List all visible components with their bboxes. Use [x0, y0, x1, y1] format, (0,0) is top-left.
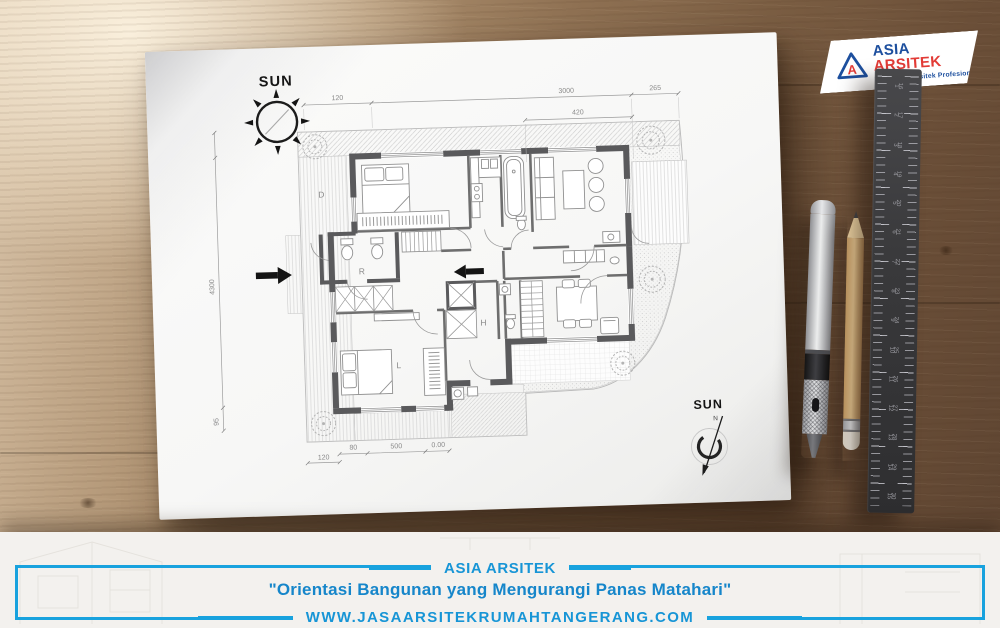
wardrobe-hangers [357, 211, 449, 231]
floor-plan-drawing: D R L H 120 3000 265 420 4300 95 80 [145, 32, 791, 520]
window [361, 406, 401, 413]
bed-master [361, 164, 410, 219]
window [624, 179, 631, 213]
terrace-deck-right [631, 160, 689, 245]
dining-table [556, 279, 597, 328]
logo-triangle-icon: A [835, 50, 868, 81]
sideboard [563, 249, 619, 265]
wall-shelf [374, 313, 419, 321]
arrow-left-icon [454, 264, 484, 279]
kitchen-counter [470, 157, 502, 218]
banner-brand: ASIA ARSITEK [431, 560, 569, 577]
staircase-upper [402, 231, 442, 252]
toilets-bathroom-r [341, 238, 384, 260]
armchair [600, 317, 618, 334]
paving-grid [511, 340, 630, 384]
banner-headline: "Orientasi Bangunan yang Mengurangi Pana… [0, 578, 1000, 602]
window [416, 405, 444, 412]
wood-plank-seam [0, 452, 165, 454]
url-rule-left [198, 616, 293, 619]
pen-grip [804, 354, 830, 381]
dim-top-right: 265 [649, 85, 661, 92]
dim-top-left: 120 [331, 95, 343, 102]
compass-sun-label: SUN [693, 397, 723, 412]
metal-ruler: 123456789101112131415 161718192021222324… [867, 69, 922, 514]
bed-second [340, 349, 392, 395]
wood-knot [78, 498, 98, 508]
pencil-tip [847, 211, 865, 238]
wc-fixtures [499, 284, 515, 329]
pen-knurl [802, 379, 829, 434]
dim-bottom-c: 0.00 [431, 442, 445, 449]
compass-north-label: N [713, 415, 718, 422]
room-label-h: H [480, 317, 486, 327]
url-rule-right [707, 616, 802, 619]
dim-left-sub: 95 [213, 418, 220, 426]
window [350, 197, 357, 221]
pen-body [805, 214, 835, 351]
sun-top-label: SUN [258, 73, 293, 90]
logo-letter: A [847, 61, 857, 77]
dim-bottom-a: 80 [349, 445, 357, 452]
pen-tip [801, 433, 827, 458]
chairs-round [588, 158, 605, 211]
bottom-banner: ASIA ARSITEK "Orientasi Bangunan yang Me… [0, 532, 1000, 628]
coffee-table [563, 170, 585, 209]
dim-bottom-left: 120 [318, 454, 330, 461]
window [627, 289, 634, 324]
wood-knot [938, 246, 954, 255]
dim-bottom-b: 500 [390, 443, 402, 450]
pen-cap [810, 200, 836, 215]
dim-top-main: 3000 [558, 88, 574, 95]
room-label-r: R [359, 266, 365, 276]
banner-url: WWW.JASAARSITEKRUMAHTANGERANG.COM [293, 609, 707, 626]
pencil-eraser [843, 432, 860, 450]
compass-icon: SUN N [690, 397, 728, 476]
sofa [534, 157, 555, 220]
deck-stripes-bottom [354, 411, 450, 441]
promo-image: D R L H 120 3000 265 420 4300 95 80 [0, 0, 1000, 628]
room-label-l: L [396, 360, 401, 370]
room-label-d: D [318, 189, 324, 199]
brand-rule-right [569, 567, 631, 570]
pencil-ferrule [843, 419, 860, 432]
staircase-lower [520, 281, 544, 338]
bathtub [503, 156, 526, 230]
window [331, 342, 338, 372]
pen-clip-hole [812, 398, 820, 412]
wardrobe-second [423, 348, 445, 396]
floor-plan-paper: D R L H 120 3000 265 420 4300 95 80 [145, 32, 791, 520]
dim-top-sub: 420 [572, 109, 584, 116]
dim-left-main: 4300 [209, 279, 216, 295]
elevator-shaft [447, 282, 475, 309]
brand-rule-left [369, 567, 431, 570]
void-shaft [446, 310, 477, 339]
corner-unit [603, 231, 620, 243]
